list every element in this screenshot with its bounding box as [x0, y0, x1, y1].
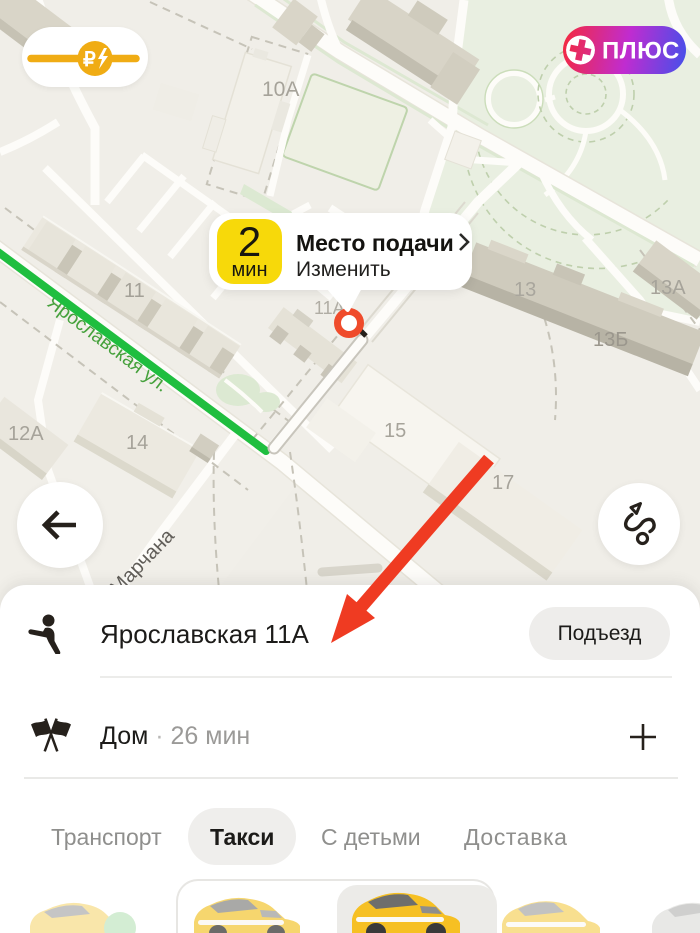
- svg-text:ПЛЮС: ПЛЮС: [602, 38, 680, 65]
- svg-text:₽: ₽: [83, 49, 96, 71]
- svg-text:11: 11: [124, 280, 145, 302]
- svg-text:15: 15: [384, 420, 406, 442]
- svg-text:13А: 13А: [650, 277, 686, 299]
- svg-text:14: 14: [126, 432, 148, 454]
- svg-text:13Б: 13Б: [593, 329, 628, 351]
- svg-text:13: 13: [514, 279, 536, 301]
- svg-text:12А: 12А: [8, 423, 44, 445]
- svg-text:10А: 10А: [262, 78, 299, 101]
